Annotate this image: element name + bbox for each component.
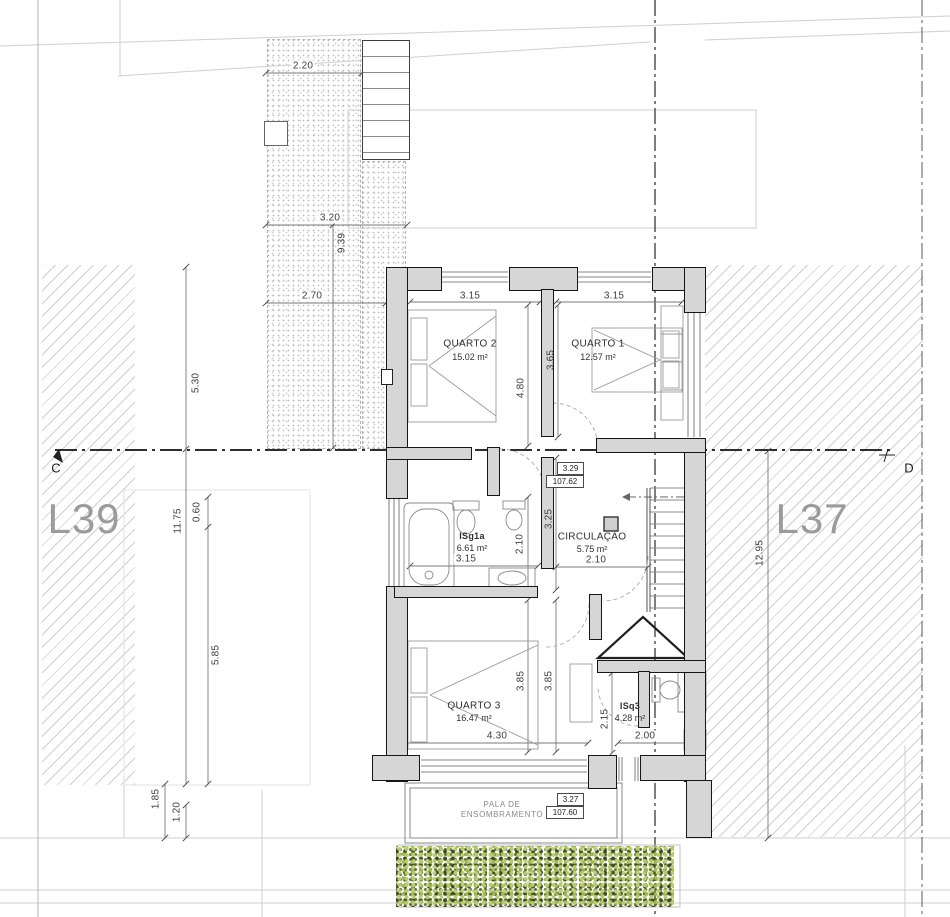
room-circulacao-name: CIRCULAÇÃO	[558, 532, 627, 543]
dim-left-585: 5.85	[211, 645, 222, 665]
room-quarto3-name: QUARTO 3	[447, 701, 500, 712]
wall-bottom-right	[640, 755, 706, 781]
stair-void-triangle	[598, 617, 688, 658]
sanitary-fixtures	[404, 501, 706, 750]
dim-q3-width: 4.30	[485, 731, 509, 742]
dim-courtyard-width-mid: 3.20	[318, 213, 342, 224]
dim-isq3-depth: 2.15	[600, 709, 611, 729]
wall-q2-bottom	[386, 447, 472, 460]
room-isq3-area: 4.28 m²	[615, 713, 646, 723]
room-isg1a-area: 6.61 m²	[457, 543, 488, 553]
room-quarto2-area: 15.02 m²	[452, 352, 488, 362]
level-marker-lower: 3.27 107.60	[546, 793, 584, 819]
wall-stair-south	[597, 660, 706, 673]
level-marker-upper: 3.29 107.62	[546, 462, 584, 488]
dim-courtyard-width-top: 2.20	[291, 61, 315, 72]
q2-wall-vent	[381, 369, 393, 385]
room-isg1a-name: ISg1a	[459, 531, 485, 541]
hedge-vegetation	[396, 846, 674, 907]
dim-courtyard-height: 9.39	[337, 233, 348, 253]
dim-left-185: 1.85	[151, 789, 162, 809]
wall-q1-bottom	[596, 438, 706, 453]
dim-q3-depth-b: 3.85	[544, 671, 555, 691]
dim-courtyard-width-low: 2.70	[300, 291, 324, 302]
dim-right-1295: 12.95	[755, 540, 766, 566]
pala-label-line1: PALA DE	[484, 800, 521, 810]
room-isq3-name: ISq3	[620, 701, 640, 711]
wall-circ-q3	[589, 594, 602, 640]
dim-left-120: 1.20	[172, 802, 183, 822]
wall-right-lower	[684, 438, 706, 782]
section-marker-d: D	[904, 461, 913, 476]
room-quarto3-area: 16.47 m²	[456, 713, 492, 723]
dim-q3-depth-a: 3.85	[516, 671, 527, 691]
wall-bottom-left	[372, 755, 420, 781]
room-quarto2-name: QUARTO 2	[443, 339, 496, 350]
plan-linework	[0, 0, 950, 917]
level-lower-relative: 3.27	[557, 793, 584, 806]
dim-q2-width: 3.15	[458, 291, 482, 302]
dim-bath-depth: 2.10	[515, 534, 526, 554]
level-upper-relative: 3.29	[557, 462, 584, 475]
wall-left-lower	[386, 586, 408, 782]
level-upper-absolute: 107.62	[546, 475, 584, 488]
wall-bath-south	[394, 586, 538, 598]
dim-isq3-width: 2.00	[633, 731, 657, 742]
plot-label-l37: L37	[775, 495, 848, 543]
dim-left-060: 0.60	[192, 502, 203, 522]
room-circulacao-area: 5.75 m²	[577, 544, 608, 554]
pala-label-line2: ENSOMBRAMENTO	[461, 810, 543, 820]
wall-bottom-mid	[588, 755, 617, 789]
dim-hall-depth: 3.25	[544, 509, 555, 529]
dim-bath-width: 3.15	[454, 554, 478, 565]
wall-right-upper	[684, 267, 706, 313]
dim-q2-depth: 4.80	[516, 378, 527, 398]
room-quarto1-area: 12.57 m²	[580, 352, 616, 362]
exterior-stair-ladder	[362, 40, 410, 160]
section-marker-c: C	[51, 461, 60, 476]
room-quarto1-name: QUARTO 1	[571, 339, 624, 350]
courtyard-equipment-box	[264, 121, 288, 146]
wall-hall-stub	[487, 447, 500, 496]
level-lower-absolute: 107.60	[546, 806, 584, 819]
dim-q1-depth: 3.65	[546, 350, 557, 370]
site-context-lines	[0, 0, 950, 917]
dim-left-530: 5.30	[191, 373, 202, 393]
wall-right-extension	[686, 780, 712, 838]
dim-left-1175: 11.75	[173, 508, 184, 533]
dim-circ-width: 2.10	[584, 555, 608, 566]
wall-top-mid-pier	[509, 267, 578, 291]
floor-plan-canvas: 2.20 3.20 9.39 2.70 5.30 11.75 0.60 5.85…	[0, 0, 950, 917]
section-arrow-d	[879, 449, 895, 462]
plot-label-l39: L39	[47, 495, 120, 543]
dim-q1-width: 3.15	[602, 291, 626, 302]
